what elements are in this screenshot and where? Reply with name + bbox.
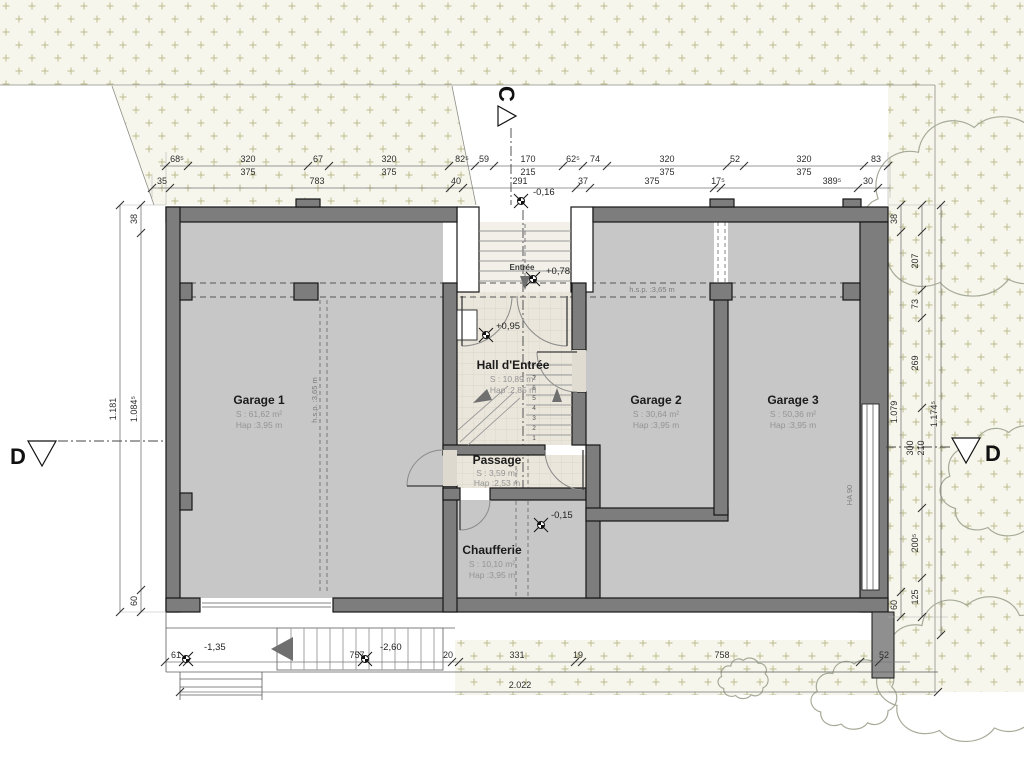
dim-label: 291 <box>512 176 527 186</box>
dim-label: 210 <box>916 440 926 455</box>
entry-flank-wall-left <box>457 207 479 292</box>
dim-label: 35 <box>157 176 167 186</box>
section-arrow-c <box>498 106 516 126</box>
terrain-upper-band <box>112 86 476 205</box>
dim-label: 389⁵ <box>823 176 842 186</box>
dim-label: 375 <box>240 167 255 177</box>
dim-label: 758 <box>714 650 729 660</box>
dim-label: 375 <box>381 167 396 177</box>
section-letter-d-right: D <box>985 441 1001 466</box>
room-name-passage: Passage <box>473 453 522 467</box>
total-dim-label: 2.022 <box>509 680 532 690</box>
garage2-garage3-wall <box>714 290 728 515</box>
dim-label: 38 <box>129 214 139 224</box>
level-label: -0,15 <box>551 510 573 521</box>
pilaster-top <box>296 199 320 207</box>
garage1-hall-wall-upper <box>443 283 457 450</box>
west-wall <box>166 207 180 612</box>
dim-label: 125 <box>910 589 920 604</box>
north-wall-west <box>166 207 457 222</box>
room-name-garage1: Garage 1 <box>233 393 285 407</box>
level-label: -1,35 <box>204 642 226 653</box>
room-area-hall: S : 10,89 m² <box>490 374 536 384</box>
dim-label: 200⁵ <box>910 533 920 552</box>
floor-plan-sheet: 68⁵ 320 375 67 320 375 82⁵ 59 170 215 62… <box>0 0 1024 768</box>
section-letter-c: C <box>494 86 519 102</box>
dim-label: 1.084⁵ <box>129 396 139 423</box>
dim-label: 17⁵ <box>711 176 725 186</box>
dim-label: 61 <box>171 650 181 660</box>
dim-label: 1.174⁵ <box>929 401 939 428</box>
window-note: HA 90 <box>845 485 854 505</box>
dim-label: 783 <box>309 176 324 186</box>
dim-label: 331 <box>509 650 524 660</box>
garage2-floor <box>586 222 714 508</box>
dim-label: 320 <box>381 154 396 164</box>
dim-label: 20 <box>443 650 453 660</box>
room-height-garage3: Hap :3,95 m <box>770 420 816 430</box>
room-name-garage2: Garage 2 <box>630 393 682 407</box>
room-area-garage1: S : 61,62 m² <box>236 409 282 419</box>
room-height-hall: Hap :2,85 m <box>490 385 536 395</box>
room-height-garage2: Hap :3,95 m <box>633 420 679 430</box>
garage23-wall-hidden <box>718 222 725 283</box>
south-wall-1 <box>166 598 200 612</box>
level-label: -0,16 <box>533 187 555 198</box>
dim-label: 269 <box>910 355 920 370</box>
garage1-hall-wall-lower <box>443 486 457 612</box>
stair-number: 3 <box>532 415 536 422</box>
dim-label: 300 <box>905 440 915 455</box>
dim-label: 37 <box>578 176 588 186</box>
dim-label: 207 <box>910 253 920 268</box>
room-name-chaufferie: Chaufferie <box>462 543 522 557</box>
stair-number: 1 <box>532 435 536 442</box>
dim-label: 320 <box>796 154 811 164</box>
level-label: +0,78 <box>546 266 570 277</box>
dim-label: 38 <box>889 214 899 224</box>
room-area-chaufferie: S : 10,10 m² <box>469 559 515 569</box>
dim-label: 52 <box>879 650 889 660</box>
dim-label: 67 <box>313 154 323 164</box>
room-area-garage2: S : 30,64 m² <box>633 409 679 419</box>
section-letter-d-left: D <box>10 444 26 469</box>
room-height-garage1: Hap :3,95 m <box>236 420 282 430</box>
dim-label: 82⁵ <box>455 154 469 164</box>
room-name-hall: Hall d'Entrée <box>477 358 550 372</box>
stair-number: 5 <box>532 395 536 402</box>
stair-number: 4 <box>532 405 536 412</box>
passage-chaufferie-wall-e <box>490 488 586 500</box>
garage3-window <box>862 404 879 590</box>
level-label: -2,60 <box>380 642 402 653</box>
column <box>843 283 860 300</box>
dim-label: 19 <box>573 650 583 660</box>
dim-label: 320 <box>659 154 674 164</box>
dim-label: 83 <box>871 154 881 164</box>
room-area-passage: S : 3,59 m² <box>476 468 518 478</box>
level-symbol <box>179 652 193 666</box>
north-wall-east <box>593 207 888 222</box>
hall-door-opening <box>572 350 586 392</box>
room-area-garage3: S : 50,36 m² <box>770 409 816 419</box>
pilaster <box>180 283 192 300</box>
dim-label: 30 <box>863 176 873 186</box>
entry-flank-wall-right <box>571 207 593 292</box>
stair-number: 2 <box>532 425 536 432</box>
dim-label: 68⁵ <box>170 154 184 164</box>
hall-garage2-wall-lower <box>572 392 586 445</box>
level-label: +0,95 <box>496 321 520 332</box>
dim-label: 375 <box>644 176 659 186</box>
hsp-note-garage1: h.s.p. :3,65 m <box>310 377 319 422</box>
dim-label: 1.079 <box>889 401 899 424</box>
column <box>294 283 318 300</box>
garage1-door-from-passage-opening <box>443 450 457 486</box>
room-name-garage3: Garage 3 <box>767 393 819 407</box>
room-height-chaufferie: Hap :3,95 m <box>469 570 515 580</box>
stair-number: 6 <box>532 385 536 392</box>
room-name-entree: Entrée <box>510 263 535 272</box>
stair-number: 7 <box>532 375 536 382</box>
level-symbol <box>514 194 528 208</box>
terrain-top-strip <box>0 0 1024 85</box>
south-wall-2 <box>333 598 888 612</box>
dim-label: 320 <box>240 154 255 164</box>
section-arrow-d-left <box>28 441 56 466</box>
dim-label: 59 <box>479 154 489 164</box>
column <box>710 283 732 300</box>
dim-label: 170 <box>520 154 535 164</box>
dim-label: 1.181 <box>108 398 118 421</box>
dim-label: 73 <box>910 299 920 309</box>
garage1-door-opening <box>202 599 331 611</box>
pilaster-top <box>710 199 734 207</box>
dim-label: 60 <box>889 600 899 610</box>
dim-label: 74 <box>590 154 600 164</box>
dim-label: 60 <box>129 596 139 606</box>
passage-chaufferie-wall-w <box>443 488 460 500</box>
entree-niche <box>457 310 477 340</box>
dim-label: 52 <box>730 154 740 164</box>
dim-label: 62⁵ <box>566 154 580 164</box>
hall-garage2-wall-upper <box>572 283 586 350</box>
exterior-pier <box>872 612 894 678</box>
hsp-note-garage2: h.s.p. :3,65 m <box>629 285 674 294</box>
floor-plan-drawing: 68⁵ 320 375 67 320 375 82⁵ 59 170 215 62… <box>0 0 1024 768</box>
dim-label: 375 <box>659 167 674 177</box>
dim-label: 375 <box>796 167 811 177</box>
room-height-passage: Hap :2,53 m <box>474 478 520 488</box>
pilaster <box>180 493 192 510</box>
dim-label: 40 <box>451 176 461 186</box>
garage3-floor-ext <box>600 521 728 598</box>
garage2-south-wall <box>586 508 728 521</box>
pilaster-top <box>843 199 861 207</box>
